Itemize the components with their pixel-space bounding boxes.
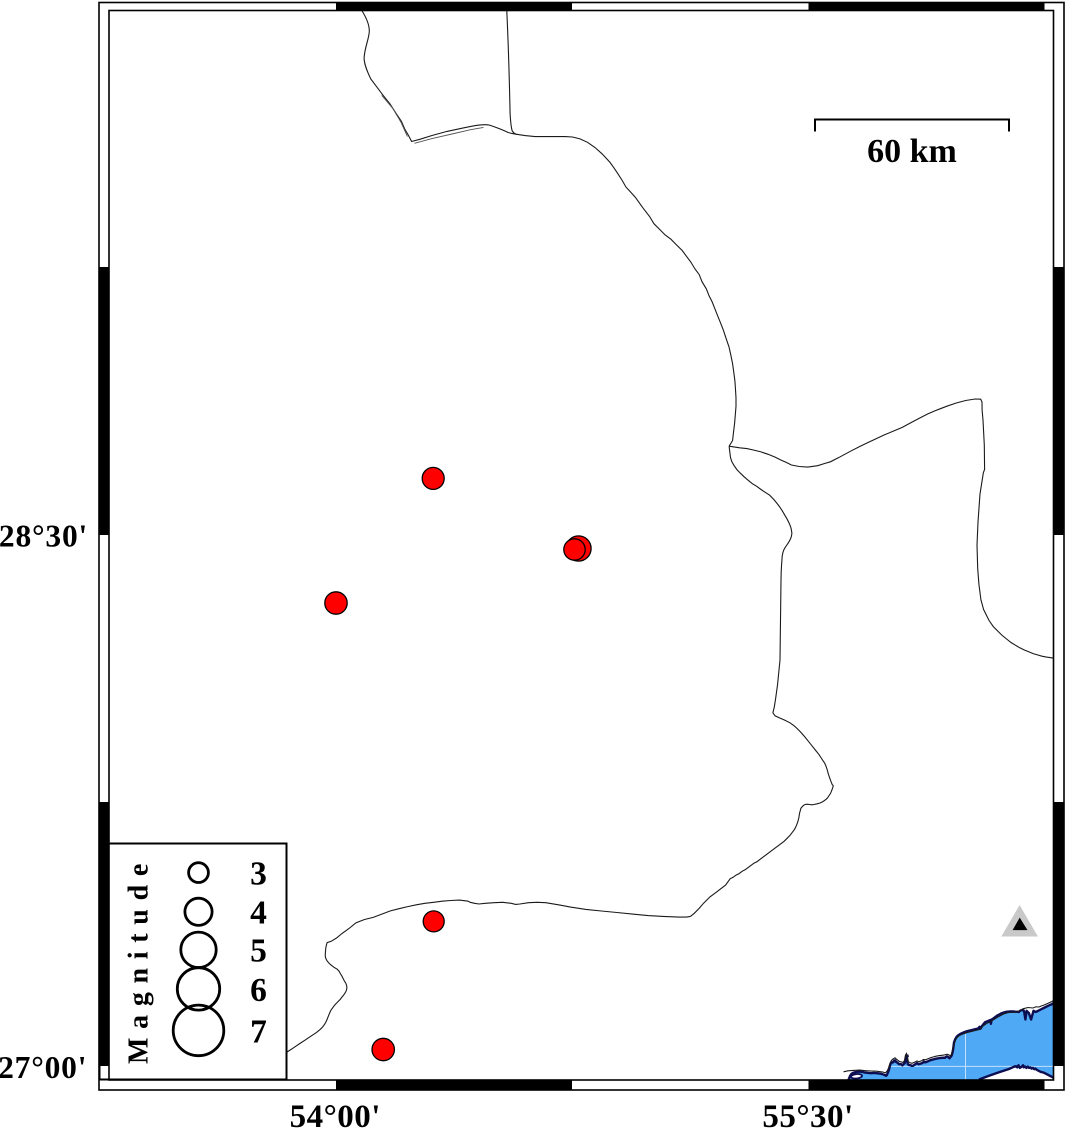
svg-text:4: 4 xyxy=(250,895,267,932)
svg-text:6: 6 xyxy=(250,972,267,1009)
svg-text:7: 7 xyxy=(250,1013,267,1050)
svg-text:54°00': 54°00' xyxy=(290,1099,381,1129)
svg-text:Magnitude: Magnitude xyxy=(124,855,155,1064)
svg-text:27°00': 27°00' xyxy=(0,1050,87,1085)
svg-text:5: 5 xyxy=(250,933,267,970)
svg-text:3: 3 xyxy=(250,856,267,893)
svg-text:60 km: 60 km xyxy=(867,133,957,170)
svg-text:28°30': 28°30' xyxy=(0,519,88,554)
svg-text:55°30': 55°30' xyxy=(762,1099,853,1129)
